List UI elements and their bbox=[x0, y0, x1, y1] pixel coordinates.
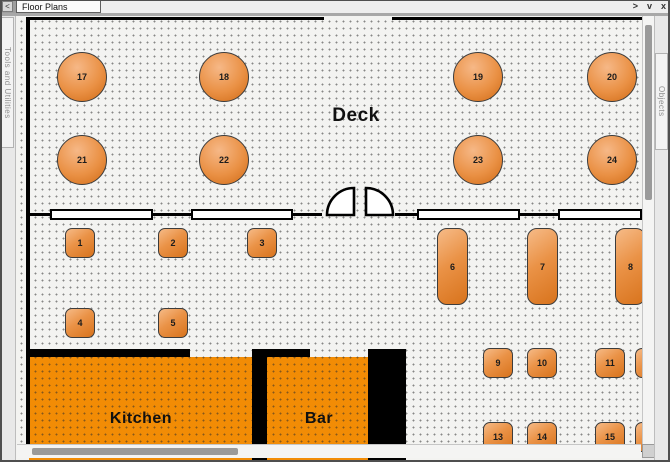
vertical-scrollbar[interactable] bbox=[642, 16, 654, 444]
expand-icon[interactable]: > bbox=[633, 1, 638, 11]
table-22[interactable]: 22 bbox=[199, 135, 249, 185]
left-wall bbox=[26, 17, 30, 444]
table-18[interactable]: 18 bbox=[199, 52, 249, 102]
window-symbol bbox=[191, 209, 293, 220]
tab-bar: < Floor Plans > v x bbox=[0, 0, 670, 13]
table-2[interactable]: 2 bbox=[158, 228, 188, 258]
close-icon[interactable]: x bbox=[661, 1, 666, 11]
top-wall-left bbox=[26, 17, 324, 20]
table-3[interactable]: 3 bbox=[247, 228, 277, 258]
window-border-top bbox=[0, 0, 670, 1]
deck-label: Deck bbox=[306, 105, 406, 127]
table-7[interactable]: 7 bbox=[527, 228, 558, 305]
toolbar-separator bbox=[0, 13, 670, 16]
right-panel: Objects bbox=[654, 16, 668, 460]
tools-and-utilities-tab[interactable]: Tools and Utilities bbox=[1, 17, 14, 148]
tab-floor-plans[interactable]: Floor Plans bbox=[16, 0, 101, 13]
table-1[interactable]: 1 bbox=[65, 228, 95, 258]
window-border-left bbox=[0, 0, 2, 462]
window-symbol bbox=[50, 209, 153, 220]
bar-top-wall bbox=[267, 349, 310, 357]
window-symbol bbox=[417, 209, 520, 220]
horizontal-scrollbar-thumb[interactable] bbox=[32, 448, 238, 455]
window-symbol bbox=[558, 209, 642, 220]
kitchen-top-wall bbox=[29, 349, 190, 357]
table-21[interactable]: 21 bbox=[57, 135, 107, 185]
table-4[interactable]: 4 bbox=[65, 308, 95, 338]
table-8[interactable]: 8 bbox=[615, 228, 642, 305]
top-wall-right bbox=[392, 17, 642, 20]
floor-plan-canvas[interactable]: Deck Kitchen Bar 17 18 19 20 21 22 23 24… bbox=[16, 16, 642, 460]
objects-tab[interactable]: Objects bbox=[655, 53, 668, 150]
table-10[interactable]: 10 bbox=[527, 348, 557, 378]
bar-label: Bar bbox=[269, 410, 369, 428]
table-6[interactable]: 6 bbox=[437, 228, 468, 305]
table-11[interactable]: 11 bbox=[595, 348, 625, 378]
double-door-symbol bbox=[320, 185, 400, 217]
left-panel: Tools and Utilities bbox=[0, 16, 16, 460]
window-controls: > v x bbox=[633, 1, 666, 11]
app-window: < Floor Plans > v x Tools and Utilities … bbox=[0, 0, 670, 462]
table-23[interactable]: 23 bbox=[453, 135, 503, 185]
kitchen-label: Kitchen bbox=[71, 410, 211, 428]
table-19[interactable]: 19 bbox=[453, 52, 503, 102]
table-cutoff[interactable] bbox=[635, 348, 642, 378]
table-17[interactable]: 17 bbox=[57, 52, 107, 102]
table-20[interactable]: 20 bbox=[587, 52, 637, 102]
chevron-down-icon[interactable]: v bbox=[647, 1, 652, 11]
collapse-left-button[interactable]: < bbox=[2, 1, 13, 12]
table-5[interactable]: 5 bbox=[158, 308, 188, 338]
vertical-scrollbar-thumb[interactable] bbox=[645, 25, 652, 200]
horizontal-scrollbar[interactable] bbox=[17, 444, 641, 458]
table-9[interactable]: 9 bbox=[483, 348, 513, 378]
table-24[interactable]: 24 bbox=[587, 135, 637, 185]
back-button-zone: < bbox=[0, 0, 16, 13]
